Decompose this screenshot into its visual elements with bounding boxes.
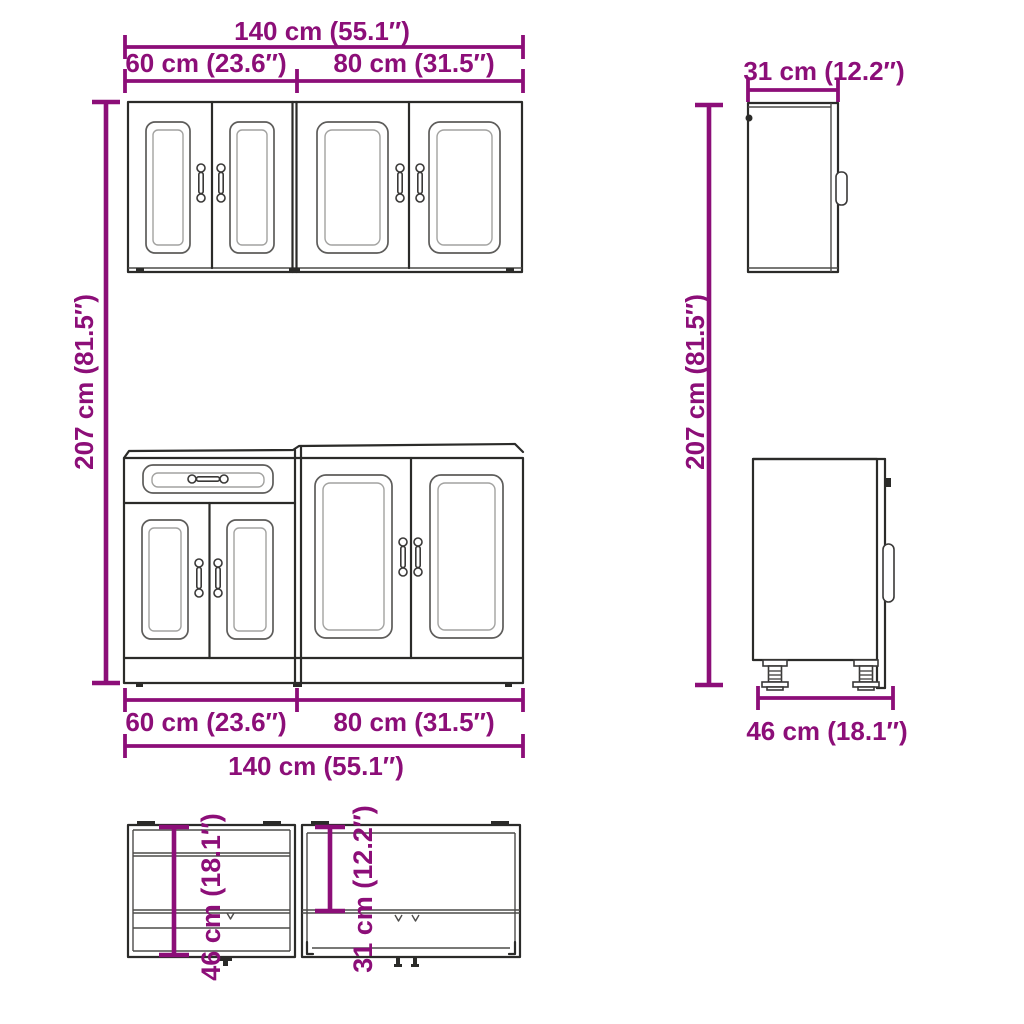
side-handle-icon — [883, 544, 894, 602]
dim-label-wall-depth-top-view: 31 cm (12.2″) — [348, 805, 378, 973]
dim-label-height-right: 207 cm (81.5″) — [680, 294, 710, 470]
door-handle-icon — [214, 559, 222, 597]
dim-bottom-unit-widths: 60 cm (23.6″) 80 cm (31.5″) — [125, 688, 523, 737]
dim-label-left-unit-width-top: 60 cm (23.6″) — [125, 48, 286, 78]
dim-label-total-width-bottom: 140 cm (55.1″) — [228, 751, 404, 781]
door-handle-icon — [195, 559, 203, 597]
kitchen-cabinet-dimension-diagram: 140 cm (55.1″) 60 cm (23.6″) 80 cm (31.5… — [0, 0, 1024, 1024]
wall-cabinets-front-view — [128, 102, 522, 272]
base-right-door-panels — [315, 475, 503, 638]
base-cabinets-front-view — [124, 444, 523, 687]
wall-cabinet-top-view — [302, 821, 520, 967]
hinge-icon — [885, 478, 891, 487]
door-handle-icon — [399, 538, 407, 576]
wall-left-door-panels — [146, 122, 274, 253]
dim-label-base-depth-top-view: 46 cm (18.1″) — [196, 813, 226, 981]
door-handle-icon — [197, 164, 205, 202]
dim-bottom-total-width: 140 cm (55.1″) — [125, 734, 523, 781]
hinge-mark-icon — [412, 915, 419, 921]
drawer-handle-icon — [188, 475, 228, 483]
dim-label-left-unit-width-bottom: 60 cm (23.6″) — [125, 707, 286, 737]
side-handle-icon — [836, 172, 847, 205]
dim-base-depth: 46 cm (18.1″) — [746, 686, 907, 746]
wall-cabinet-side-view — [746, 103, 848, 272]
hinge-icon — [746, 115, 753, 122]
hinge-mark-icon — [395, 915, 402, 921]
drawer-front — [143, 465, 273, 493]
dim-label-right-unit-width-bottom: 80 cm (31.5″) — [333, 707, 494, 737]
dim-label-height-left: 207 cm (81.5″) — [69, 294, 99, 470]
dim-right-height: 207 cm (81.5″) — [680, 104, 723, 686]
door-handle-icon — [396, 164, 404, 202]
dim-base-depth-top-view: 46 cm (18.1″) — [159, 813, 226, 981]
dim-top-unit-widths: 60 cm (23.6″) 80 cm (31.5″) — [125, 48, 523, 93]
door-handle-icon — [217, 164, 225, 202]
base-left-door-panels — [142, 520, 273, 639]
hinge-mark-icon — [227, 913, 234, 919]
dim-label-wall-depth: 31 cm (12.2″) — [743, 56, 904, 86]
dim-wall-depth: 31 cm (12.2″) — [743, 56, 904, 102]
cabinet-leg-icon — [853, 660, 879, 690]
dim-left-height: 207 cm (81.5″) — [69, 101, 120, 684]
base-cabinet-side-view — [753, 459, 894, 690]
dim-label-base-depth: 46 cm (18.1″) — [746, 716, 907, 746]
dim-label-right-unit-width-top: 80 cm (31.5″) — [333, 48, 494, 78]
dim-label-total-width-top: 140 cm (55.1″) — [234, 16, 410, 46]
cabinet-leg-icon — [762, 660, 788, 690]
door-handle-icon — [414, 538, 422, 576]
diagram-canvas: 140 cm (55.1″) 60 cm (23.6″) 80 cm (31.5… — [0, 0, 1024, 1024]
hinge-mark-icon — [394, 957, 419, 967]
door-handle-icon — [416, 164, 424, 202]
